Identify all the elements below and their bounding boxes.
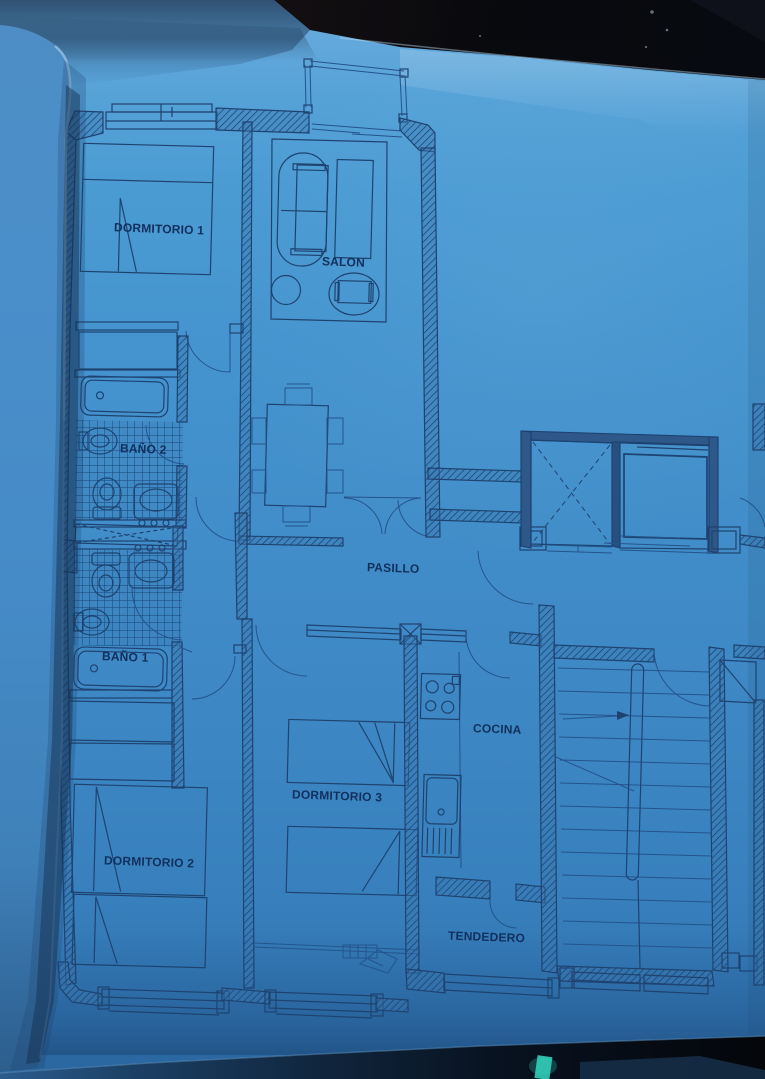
- svg-text:COCINA: COCINA: [473, 721, 522, 737]
- svg-text:BAÑO 2: BAÑO 2: [120, 440, 167, 457]
- svg-text:BAÑO 1: BAÑO 1: [102, 648, 149, 665]
- svg-text:TENDEDERO: TENDEDERO: [448, 929, 526, 946]
- svg-text:SALON: SALON: [322, 254, 365, 269]
- svg-text:PASILLO: PASILLO: [367, 560, 420, 576]
